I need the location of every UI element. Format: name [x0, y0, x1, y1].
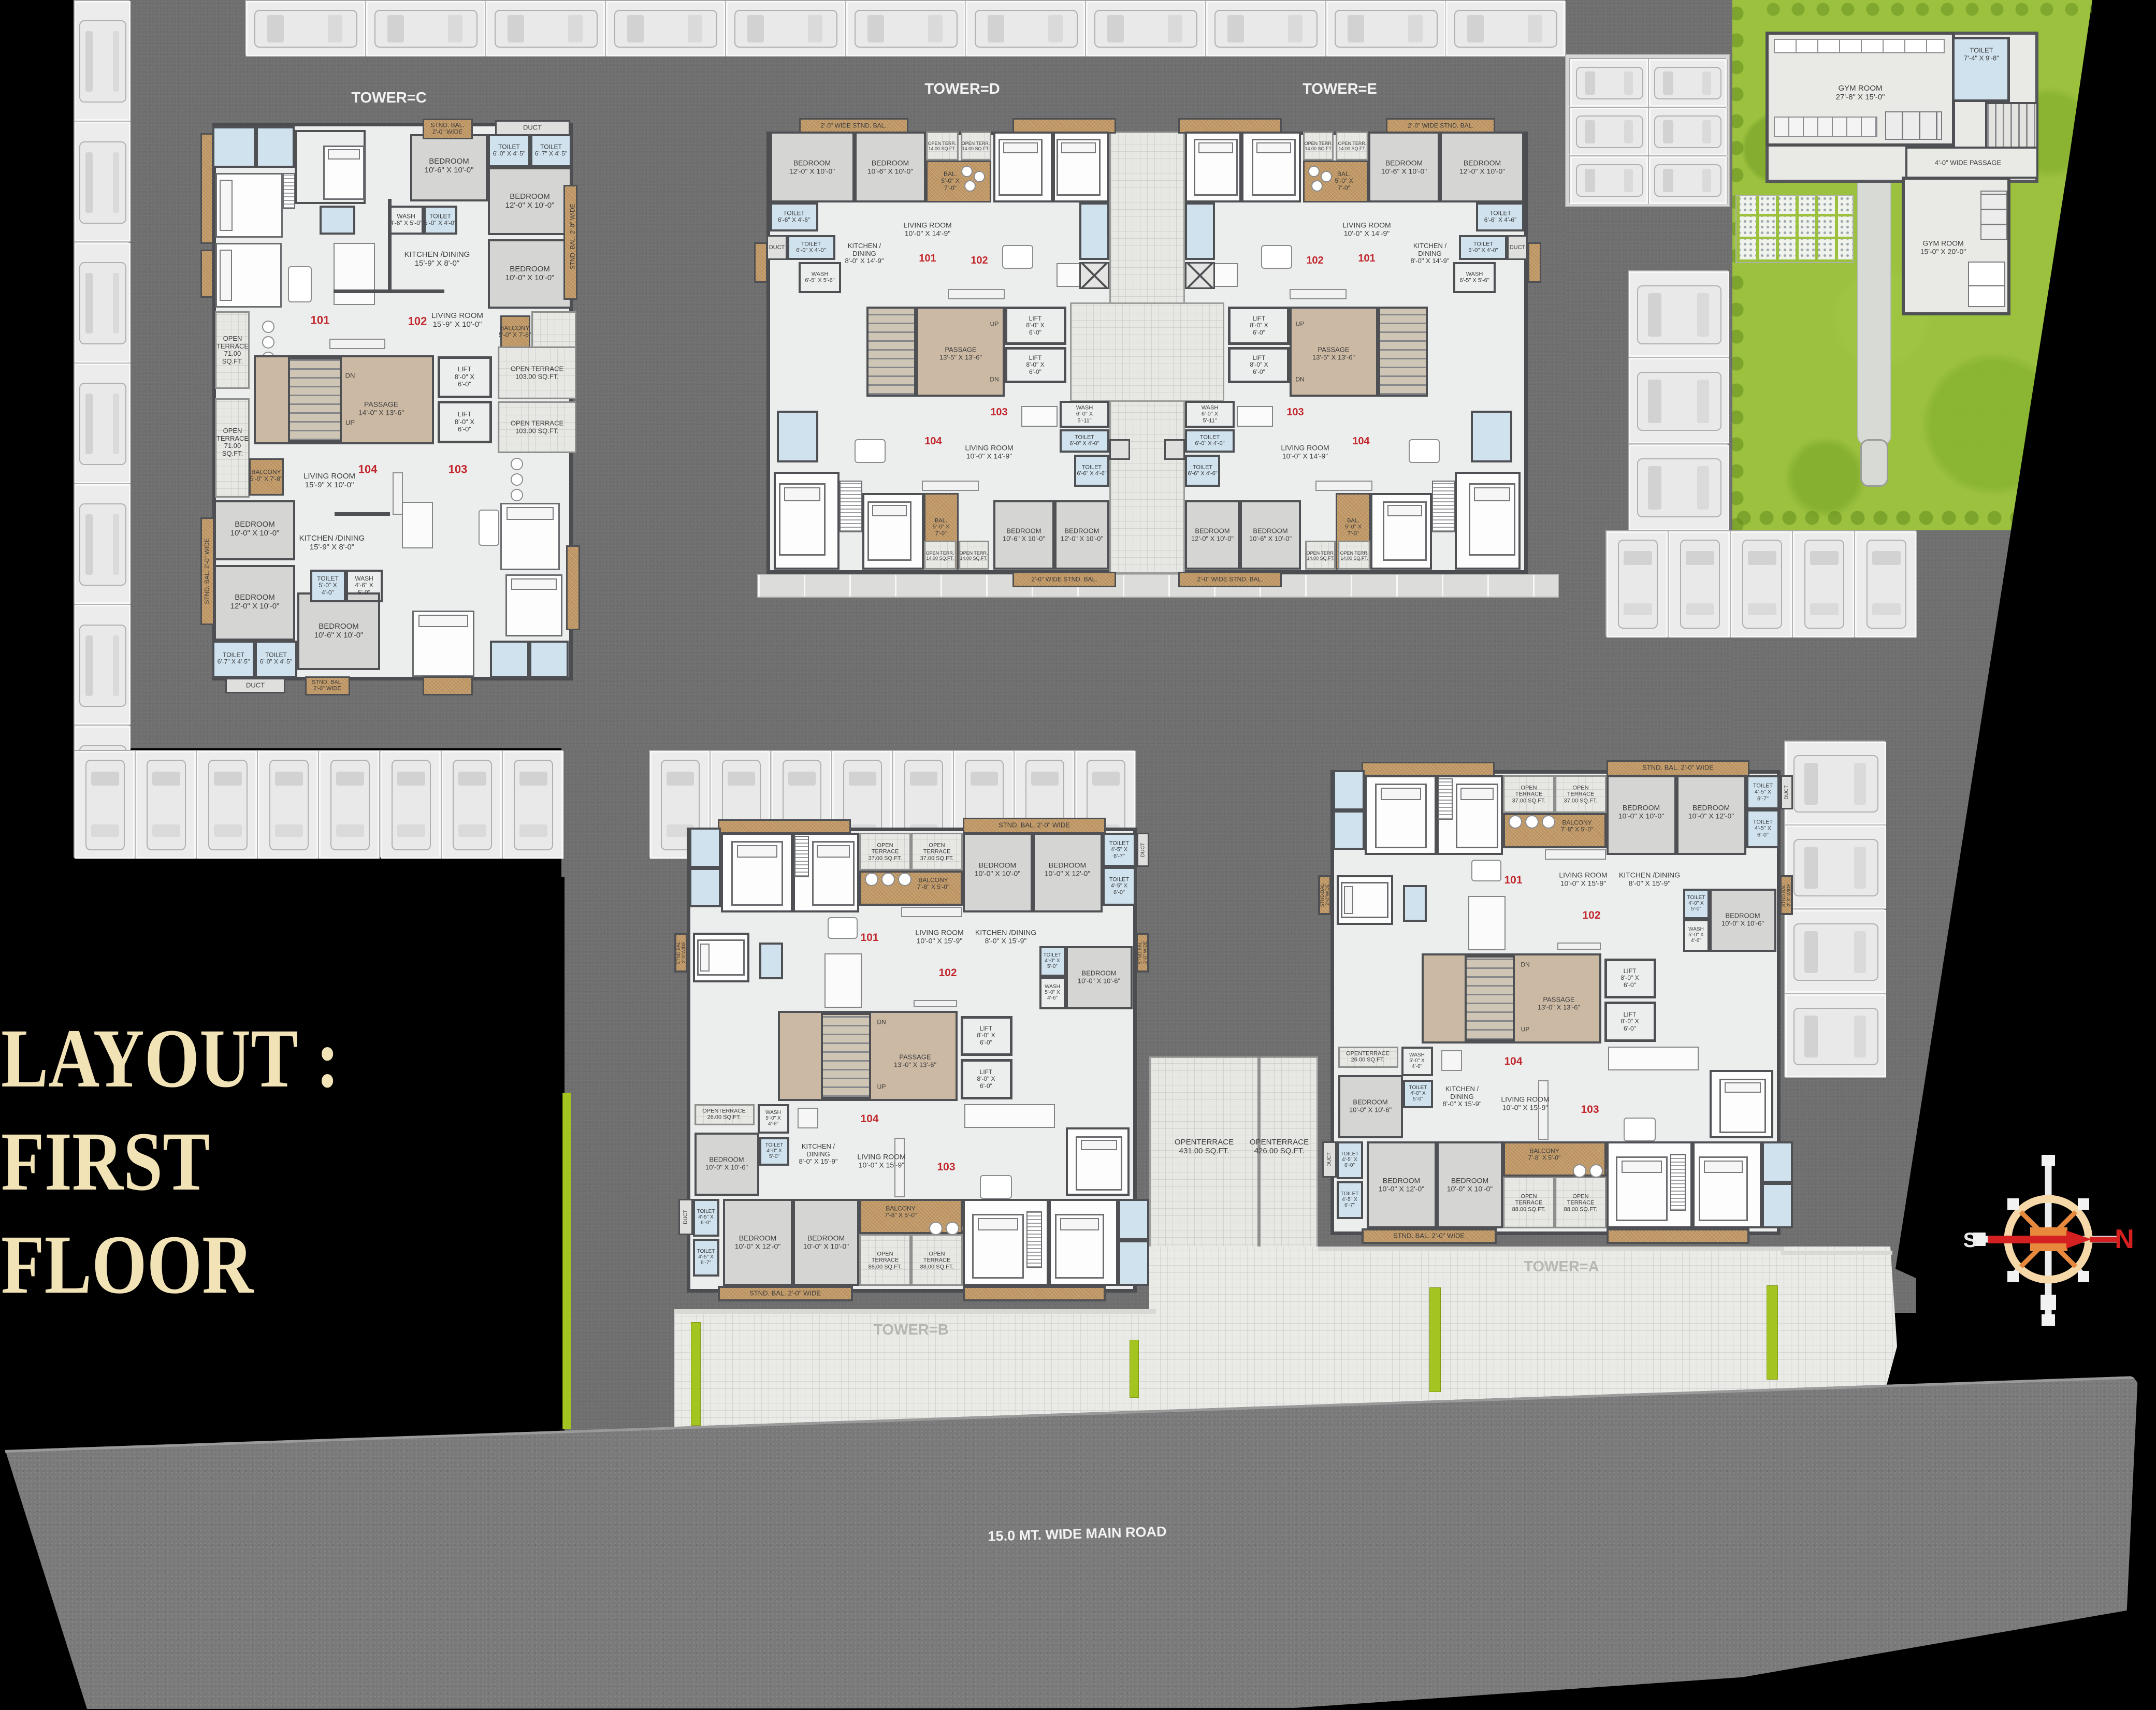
svg-text:S: S — [1963, 1229, 1977, 1252]
svg-text:N: N — [2115, 1224, 2134, 1254]
